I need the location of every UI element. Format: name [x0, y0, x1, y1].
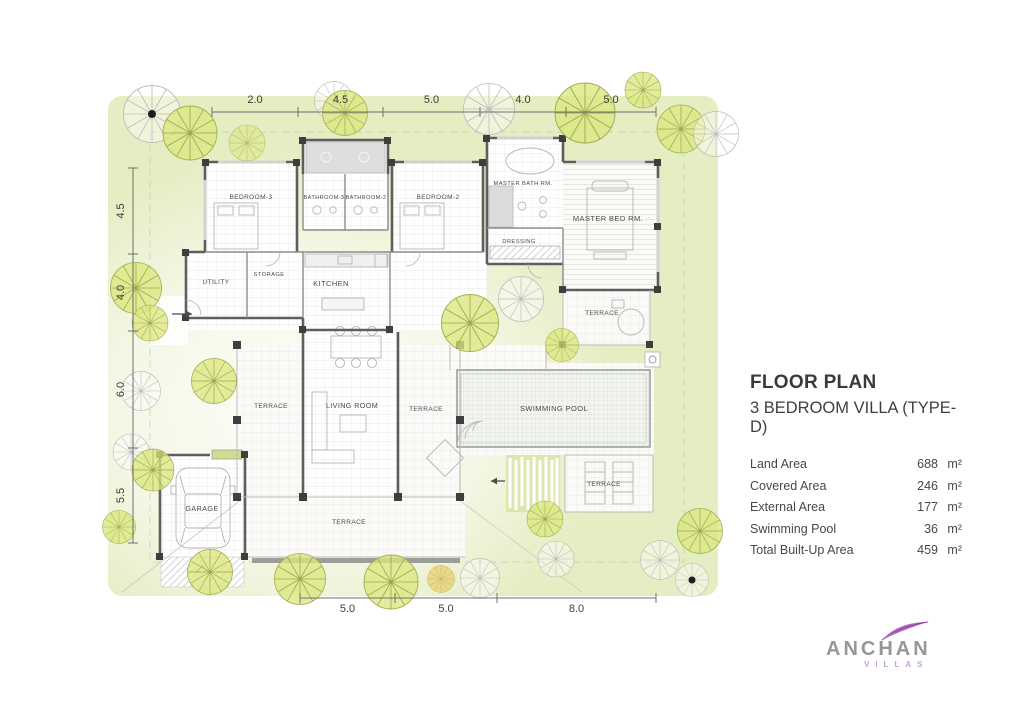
logo-sub: VILLAS — [864, 660, 928, 669]
area-row-covered: Covered Area 246 m² — [750, 479, 962, 501]
dim-bottom-2: 8.0 — [569, 603, 584, 615]
brand-logo: ANCHAN VILLAS — [826, 620, 956, 675]
dim-left-0: 4.5 — [115, 203, 127, 218]
label-terrace-left: TERRACE — [254, 403, 288, 410]
area-table: Land Area 688 m² Covered Area 246 m² Ext… — [750, 457, 962, 565]
area-row-total: Total Built-Up Area 459 m² — [750, 543, 962, 565]
area-label: External Area — [750, 500, 902, 514]
area-value: 36 — [902, 522, 938, 536]
area-label: Covered Area — [750, 479, 902, 493]
dim-top-0: 2.0 — [247, 94, 262, 106]
area-value: 246 — [902, 479, 938, 493]
dim-left-3: 5.5 — [115, 488, 127, 503]
floor-plan-drawing: 2.0 4.5 5.0 4.0 5.0 4.5 4.0 6.0 5.5 5.0 … — [0, 0, 1024, 709]
label-terrace-pool: TERRACE — [587, 481, 621, 488]
label-bedroom3: BEDROOM-3 — [230, 194, 273, 201]
panel-title: FLOOR PLAN — [750, 372, 962, 394]
logo-name: ANCHAN — [826, 638, 931, 661]
label-kitchen: KITCHEN — [313, 279, 349, 288]
page: 2.0 4.5 5.0 4.0 5.0 4.5 4.0 6.0 5.5 5.0 … — [0, 0, 1024, 709]
dim-top-1: 4.5 — [333, 94, 348, 106]
area-row-pool: Swimming Pool 36 m² — [750, 522, 962, 544]
area-label: Swimming Pool — [750, 522, 902, 536]
area-row-external: External Area 177 m² — [750, 500, 962, 522]
label-bathroom2: BATHROOM-2 — [346, 195, 387, 201]
area-unit: m² — [938, 479, 962, 493]
area-label: Total Built-Up Area — [750, 543, 902, 557]
label-dressing: DRESSING — [502, 239, 536, 245]
area-label: Land Area — [750, 457, 902, 471]
area-row-land: Land Area 688 m² — [750, 457, 962, 479]
label-storage: STORAGE — [253, 272, 284, 278]
area-unit: m² — [938, 500, 962, 514]
label-bedroom2: BEDROOM-2 — [417, 194, 460, 201]
label-utility: UTILITY — [203, 279, 230, 286]
info-panel: FLOOR PLAN 3 BEDROOM VILLA (TYPE-D) Land… — [750, 372, 962, 565]
dim-top-2: 5.0 — [424, 94, 439, 106]
label-terrace-bottom: TERRACE — [332, 519, 366, 526]
dim-top-3: 4.0 — [515, 94, 530, 106]
dim-bottom-0: 5.0 — [340, 603, 355, 615]
label-terrace-right: TERRACE — [409, 406, 443, 413]
label-living-room: LIVING ROOM — [326, 401, 378, 410]
area-unit: m² — [938, 522, 962, 536]
label-swimming-pool: SWIMMING POOL — [520, 404, 588, 413]
panel-subtitle: 3 BEDROOM VILLA (TYPE-D) — [750, 399, 962, 437]
area-value: 177 — [902, 500, 938, 514]
label-master-bath: MASTER BATH RM. — [493, 181, 552, 187]
label-terrace-master: TERRACE — [585, 310, 619, 317]
label-garage: GARAGE — [185, 504, 218, 513]
dim-left-1: 4.0 — [115, 285, 127, 300]
dim-bottom-1: 5.0 — [438, 603, 453, 615]
dim-top-4: 5.0 — [603, 94, 618, 106]
area-unit: m² — [938, 457, 962, 471]
label-master-bed: MASTER BED RM. — [573, 214, 643, 223]
dim-left-2: 6.0 — [115, 382, 127, 397]
area-value: 459 — [902, 543, 938, 557]
label-bathroom3: BATHROOM-3 — [304, 195, 345, 201]
area-unit: m² — [938, 543, 962, 557]
area-value: 688 — [902, 457, 938, 471]
